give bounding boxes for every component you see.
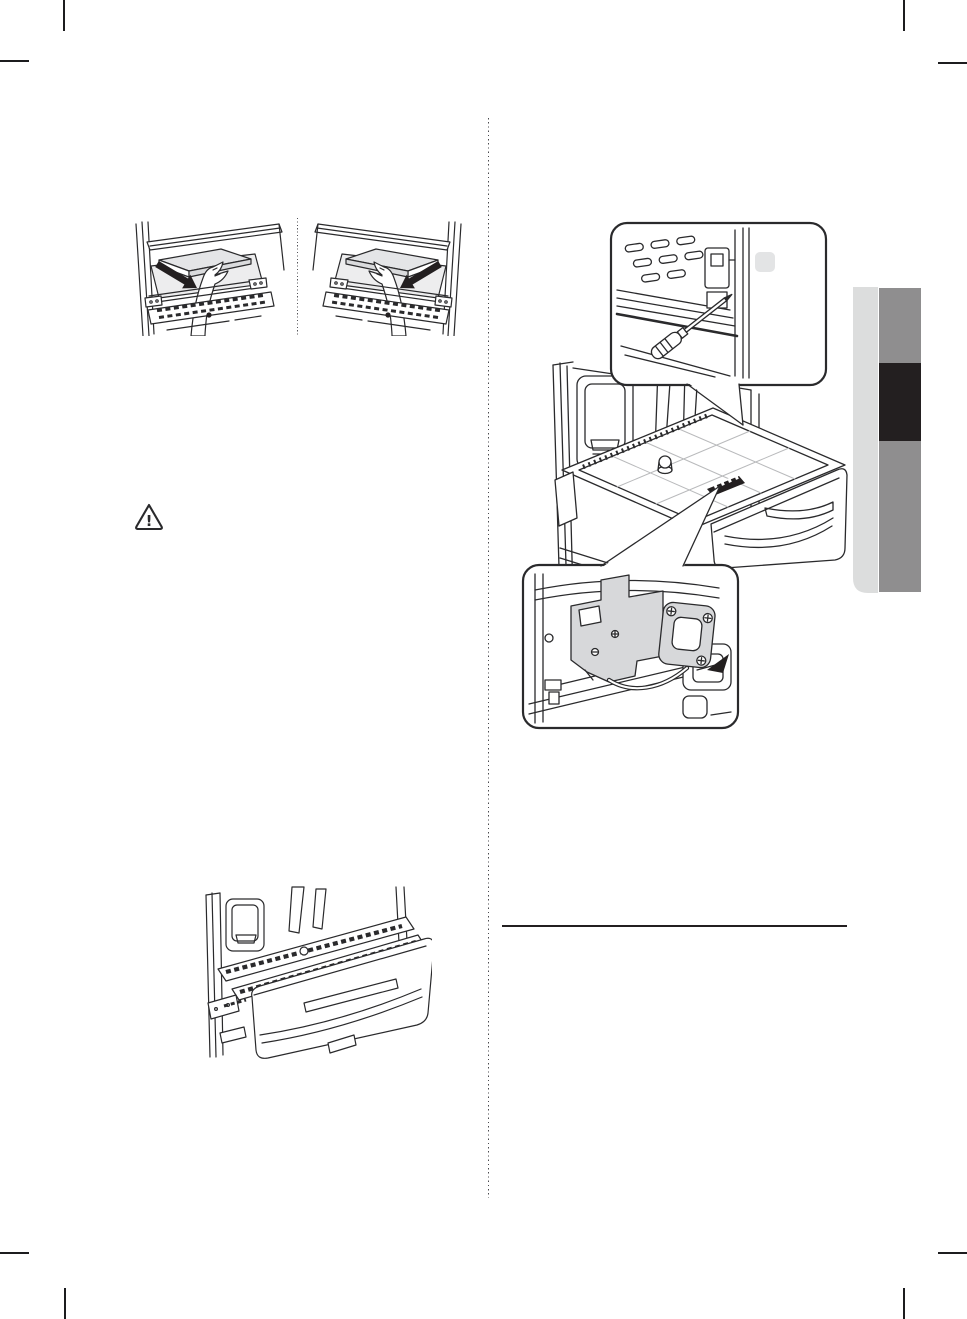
crop-mark-top-left-h bbox=[0, 60, 29, 62]
crop-mark-bottom-right-h bbox=[938, 1252, 967, 1254]
crop-mark-bottom-left-h bbox=[0, 1252, 29, 1254]
crop-mark-bottom-left-v bbox=[64, 1288, 66, 1319]
figure-freezer-drawer-open bbox=[200, 885, 432, 1060]
crop-mark-top-right-h bbox=[938, 62, 967, 64]
side-index-tabs bbox=[852, 286, 922, 594]
side-tab-active bbox=[879, 363, 921, 441]
column-divider bbox=[488, 118, 489, 1198]
pair-divider bbox=[297, 218, 298, 336]
caution-icon: ! bbox=[134, 502, 164, 530]
figure-freezer-drawer-service bbox=[515, 218, 850, 735]
manual-page: ! bbox=[0, 0, 967, 1319]
crop-mark-top-left-v bbox=[63, 0, 65, 31]
callout-screwdriver bbox=[611, 223, 826, 385]
caution-glyph: ! bbox=[146, 512, 153, 530]
drawer-knob bbox=[658, 456, 672, 474]
latch-knob bbox=[755, 252, 775, 272]
figure-shelf-removal-pair bbox=[133, 218, 467, 336]
callout-bracket bbox=[523, 565, 738, 728]
section-divider-rule bbox=[502, 925, 847, 927]
bracket-flange bbox=[658, 601, 716, 668]
figure-shelf-removal-right bbox=[310, 218, 464, 336]
crop-mark-top-right-v bbox=[903, 0, 905, 31]
crop-mark-bottom-right-v bbox=[903, 1288, 905, 1319]
drawer-left-slide bbox=[555, 472, 577, 526]
side-tab-light bbox=[853, 287, 878, 593]
figure-shelf-removal-left bbox=[133, 218, 287, 336]
vent-cap bbox=[683, 696, 707, 718]
